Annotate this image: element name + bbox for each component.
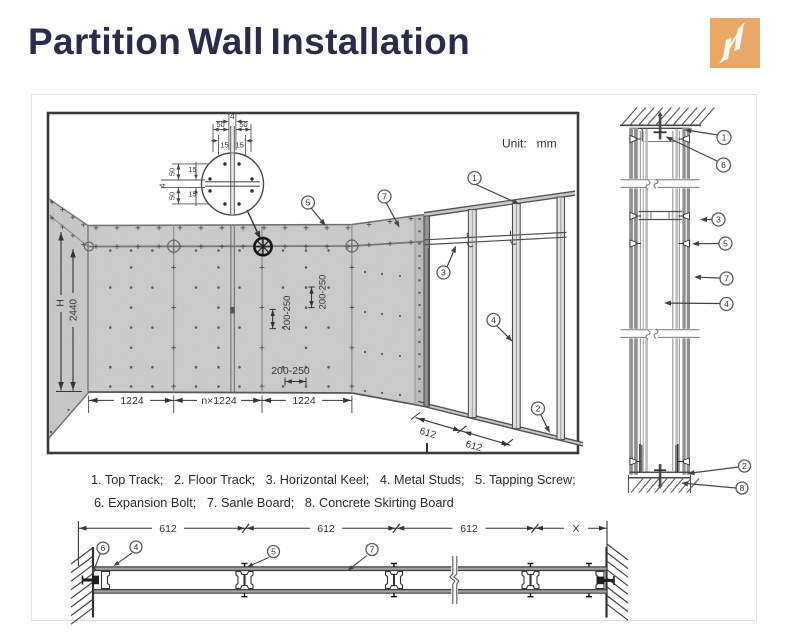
svg-text:200-250: 200-250: [271, 365, 310, 377]
svg-text:50: 50: [216, 120, 224, 129]
svg-text:Unit: mm: Unit: mm: [502, 137, 557, 151]
svg-text:4: 4: [491, 315, 496, 325]
svg-text:4: 4: [134, 542, 139, 552]
svg-text:8: 8: [740, 483, 745, 493]
svg-text:7: 7: [724, 274, 729, 284]
svg-text:2440: 2440: [69, 298, 80, 321]
svg-text:5: 5: [271, 547, 276, 557]
svg-text:15: 15: [220, 141, 228, 150]
svg-text:50: 50: [168, 168, 177, 176]
svg-text:2: 2: [742, 461, 747, 471]
svg-text:612: 612: [317, 523, 335, 535]
svg-text:1224: 1224: [292, 395, 316, 407]
svg-text:50: 50: [168, 192, 177, 200]
svg-text:1: 1: [472, 173, 477, 183]
svg-text:200-250: 200-250: [318, 275, 329, 310]
svg-text:5: 5: [723, 239, 728, 249]
svg-text:n×1224: n×1224: [201, 395, 236, 407]
svg-text:15: 15: [189, 167, 197, 174]
svg-text:1224: 1224: [120, 395, 144, 407]
svg-text:7: 7: [382, 192, 387, 202]
svg-text:3: 3: [716, 215, 721, 225]
svg-text:2: 2: [536, 404, 541, 414]
svg-text:4: 4: [724, 299, 729, 309]
svg-text:50: 50: [239, 120, 247, 129]
svg-text:7: 7: [370, 545, 375, 555]
svg-text:4: 4: [158, 183, 168, 188]
svg-text:200-250: 200-250: [282, 296, 293, 331]
svg-text:X: X: [572, 523, 579, 535]
svg-text:15: 15: [236, 141, 244, 150]
svg-text:H: H: [55, 299, 67, 307]
svg-text:1: 1: [722, 133, 727, 143]
svg-text:6: 6: [721, 160, 726, 170]
svg-text:3: 3: [441, 268, 446, 278]
svg-text:4: 4: [230, 111, 235, 121]
svg-text:6: 6: [101, 543, 106, 553]
svg-text:612: 612: [159, 523, 177, 535]
svg-text:5: 5: [306, 198, 311, 208]
svg-text:612: 612: [460, 523, 478, 535]
svg-text:15: 15: [189, 192, 197, 199]
